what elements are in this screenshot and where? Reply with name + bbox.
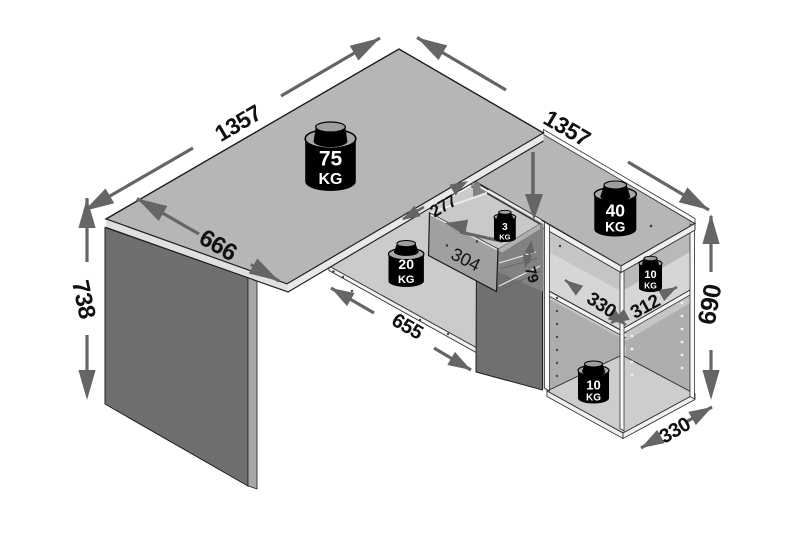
svg-text:738: 738: [66, 278, 100, 321]
svg-text:10: 10: [586, 378, 600, 393]
svg-text:75: 75: [319, 148, 343, 171]
svg-text:KG: KG: [586, 393, 601, 404]
svg-text:3: 3: [502, 222, 508, 233]
svg-text:KG: KG: [319, 171, 343, 188]
svg-text:10: 10: [644, 269, 656, 281]
svg-text:40: 40: [606, 201, 626, 221]
svg-text:KG: KG: [398, 274, 415, 286]
svg-text:690: 690: [693, 282, 728, 326]
svg-text:20: 20: [398, 256, 414, 272]
svg-text:KG: KG: [644, 281, 657, 291]
svg-text:KG: KG: [499, 233, 510, 242]
svg-text:KG: KG: [605, 219, 625, 234]
